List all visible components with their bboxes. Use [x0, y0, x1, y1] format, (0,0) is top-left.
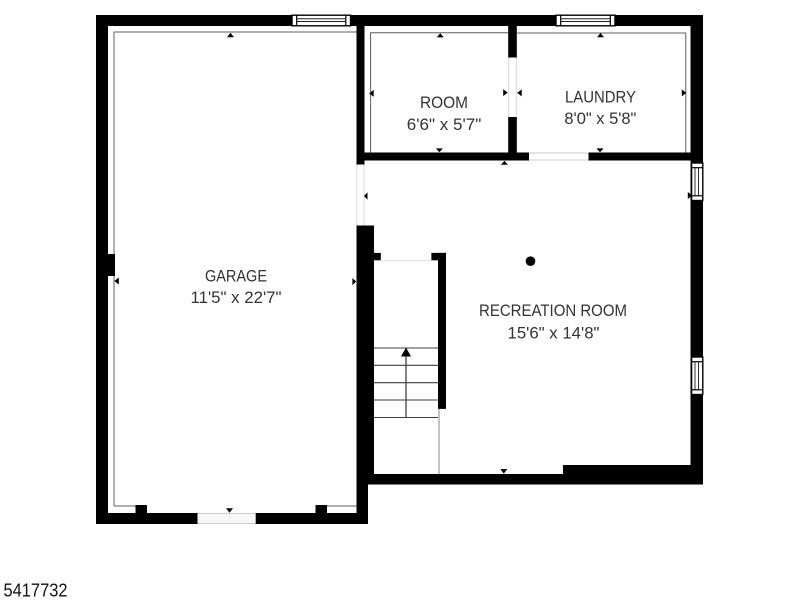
- svg-text:LAUNDRY: LAUNDRY: [565, 89, 636, 107]
- svg-text:ROOM: ROOM: [420, 94, 468, 112]
- svg-text:11'5" x 22'7": 11'5" x 22'7": [191, 288, 282, 307]
- svg-text:6'6" x 5'7": 6'6" x 5'7": [407, 115, 482, 134]
- svg-text:5417732: 5417732: [4, 580, 68, 600]
- svg-text:8'0" x 5'8": 8'0" x 5'8": [564, 109, 636, 128]
- svg-text:GARAGE: GARAGE: [205, 268, 267, 286]
- svg-text:15'6" x 14'8": 15'6" x 14'8": [508, 323, 600, 342]
- svg-text:RECREATION ROOM: RECREATION ROOM: [479, 302, 627, 320]
